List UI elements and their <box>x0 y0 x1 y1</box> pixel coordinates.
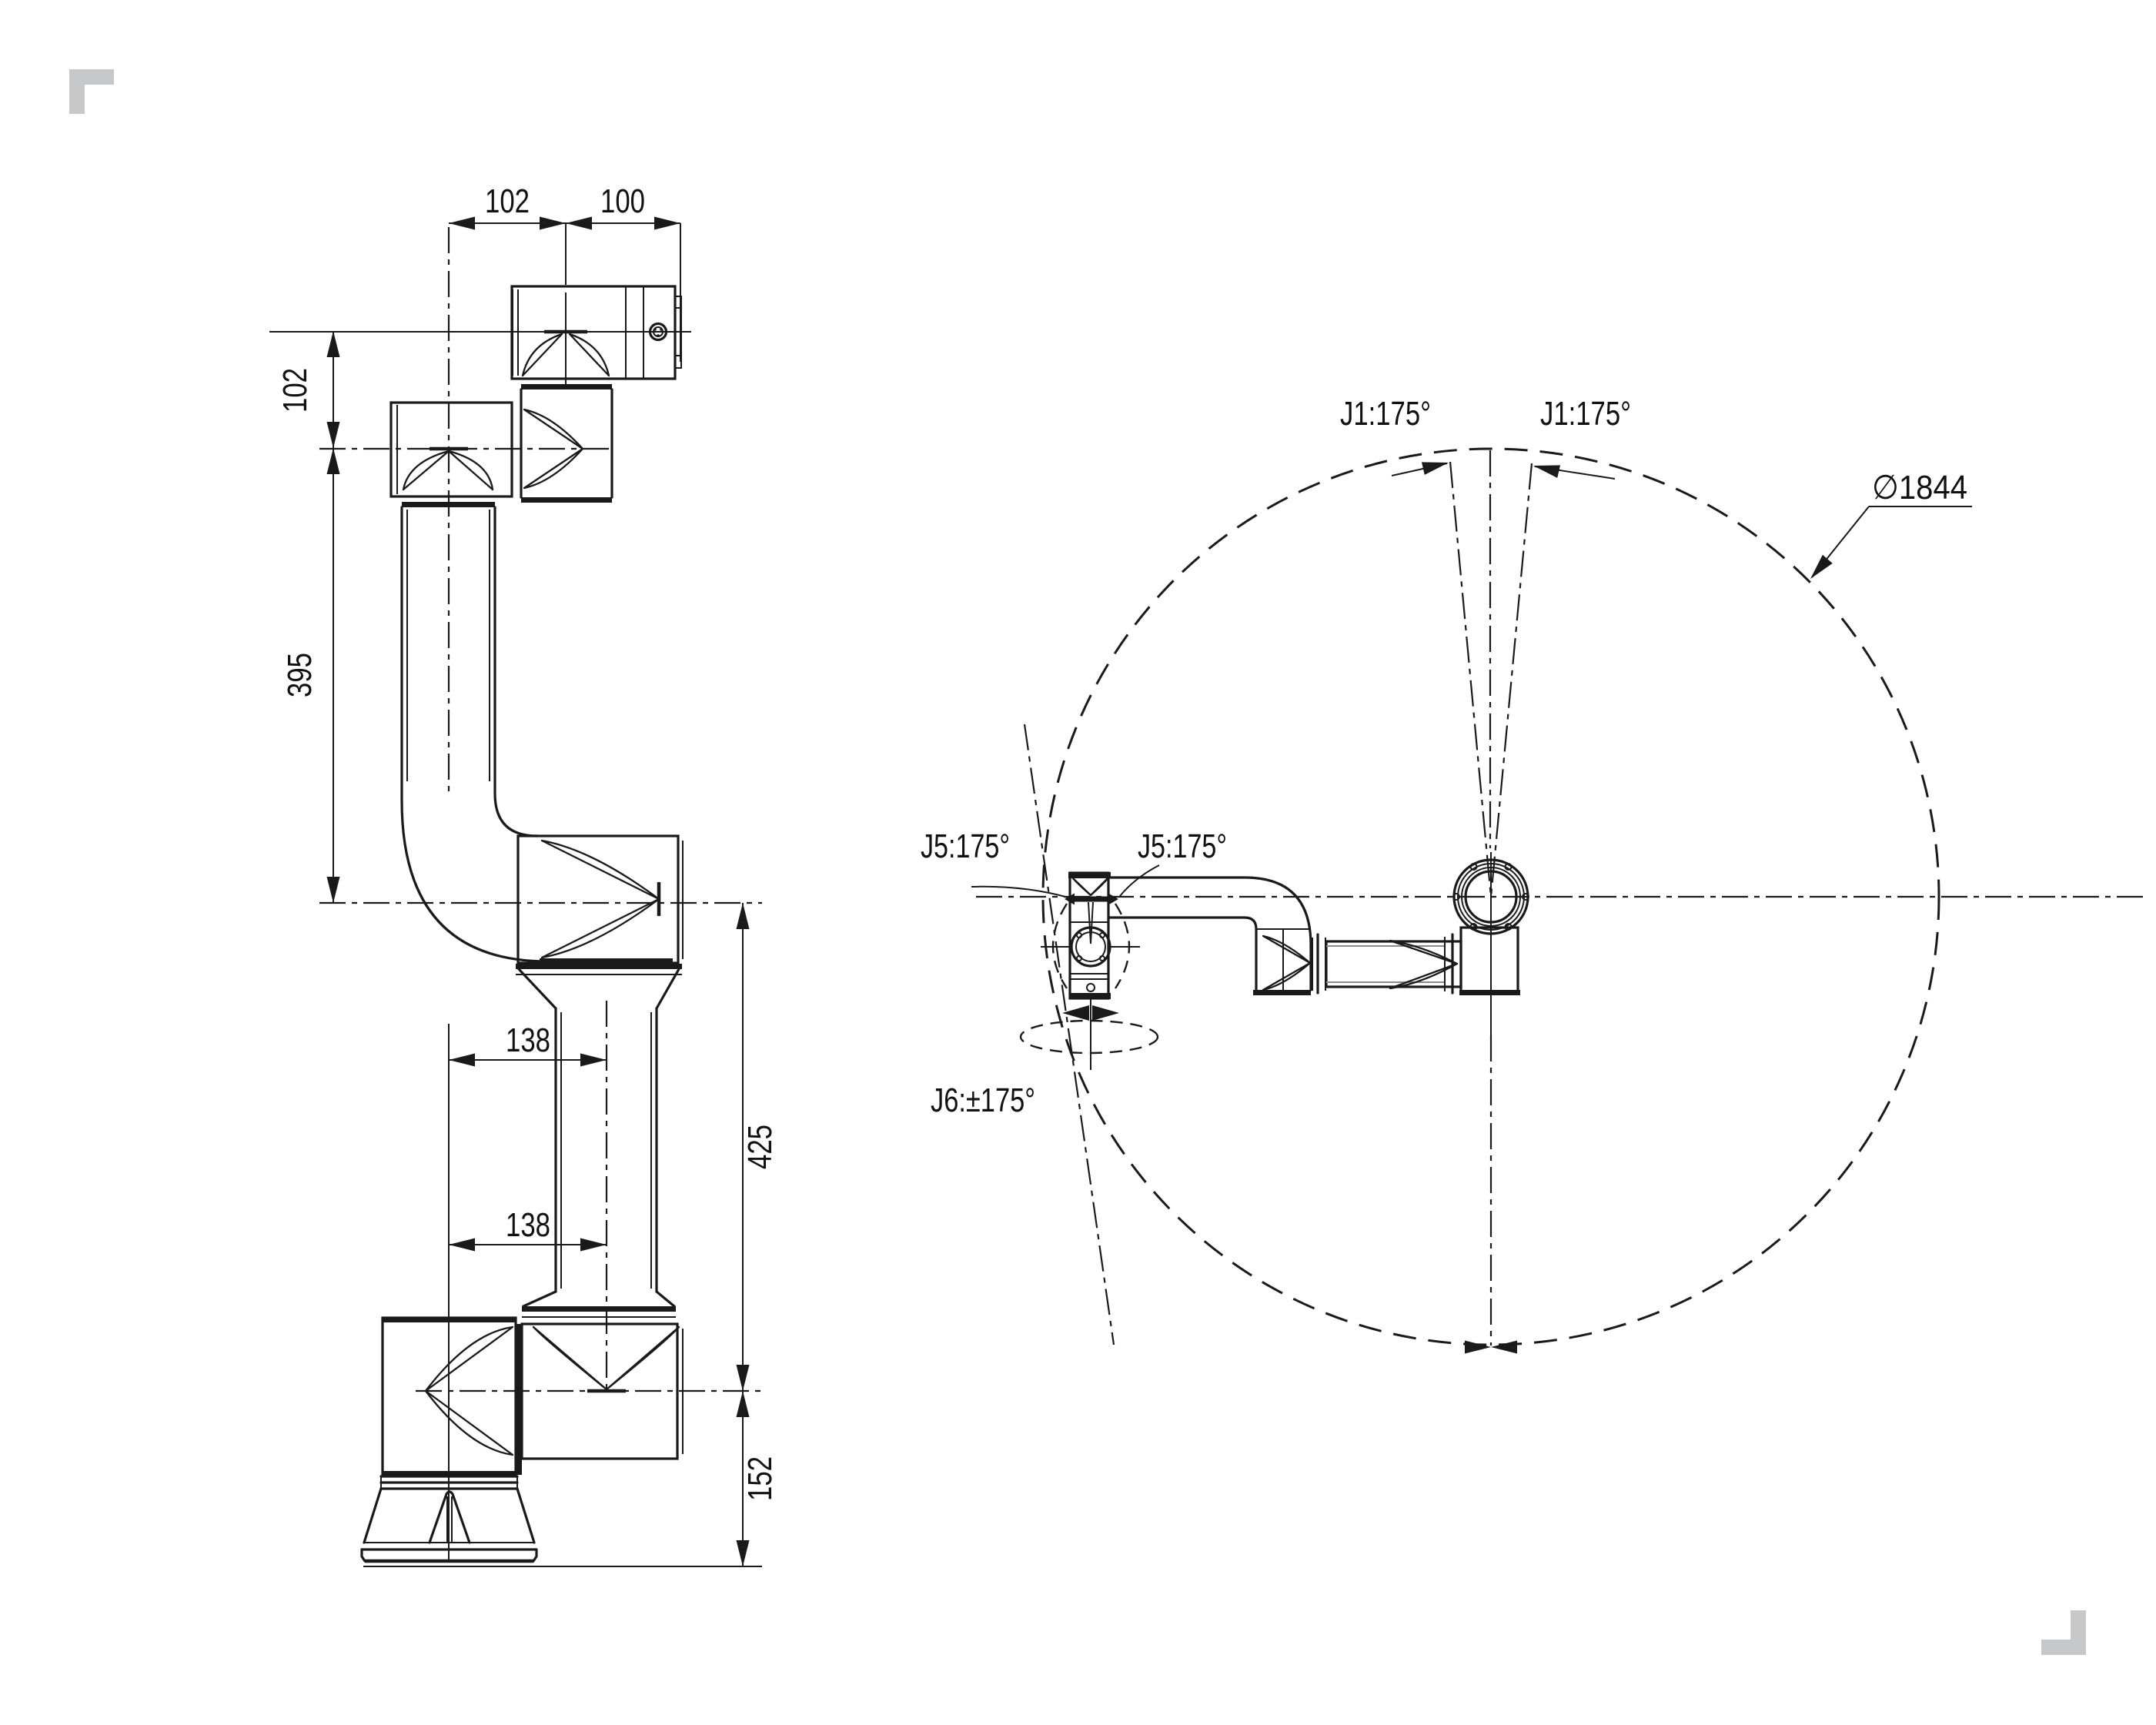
robot-dimension-drawing: 102 100 102 395 138 138 425 152 J1:175° … <box>0 0 2156 1725</box>
label-workspace-diameter: ∅1844 <box>1872 469 1967 506</box>
dim-425-right: 425 <box>741 1125 779 1169</box>
label-j5-right: J5:175° <box>1138 827 1227 865</box>
label-j1-left: J1:175° <box>1340 395 1431 433</box>
tool-flange-assembly <box>512 286 681 389</box>
corner-mark-top-left-icon <box>69 69 114 114</box>
label-j1-right: J1:175° <box>1540 395 1631 433</box>
dim-100-top: 100 <box>600 182 645 220</box>
label-j5-left: J5:175° <box>921 827 1010 865</box>
wrist-link <box>521 389 612 503</box>
dim-138-upper: 138 <box>506 1021 550 1059</box>
elbow-joint-pattern <box>542 841 659 958</box>
j6-axis-line <box>1025 724 1114 1345</box>
label-j6: J6:±175° <box>931 1081 1035 1119</box>
j6-range-ellipse <box>1021 1021 1158 1053</box>
dim-102-left: 102 <box>276 368 314 413</box>
top-view: J1:175° J1:175° ∅1844 <box>921 395 2148 1354</box>
drawing-sheet: 102 100 102 395 138 138 425 152 J1:175° … <box>0 0 2156 1725</box>
side-view: 102 100 102 395 138 138 425 152 <box>269 182 779 1566</box>
dim-395-left: 395 <box>281 653 319 697</box>
j5-joint-housing <box>391 403 512 507</box>
side-view-dimensions: 102 100 102 395 138 138 425 152 <box>276 182 779 1566</box>
upper-arm <box>402 507 548 961</box>
dim-152-right: 152 <box>741 1456 779 1501</box>
dim-102-top: 102 <box>485 182 530 220</box>
corner-mark-bottom-right-icon <box>2041 1610 2086 1655</box>
elbow-joint <box>518 836 683 964</box>
forearm-column <box>516 964 682 1317</box>
dim-138-lower: 138 <box>506 1206 550 1244</box>
